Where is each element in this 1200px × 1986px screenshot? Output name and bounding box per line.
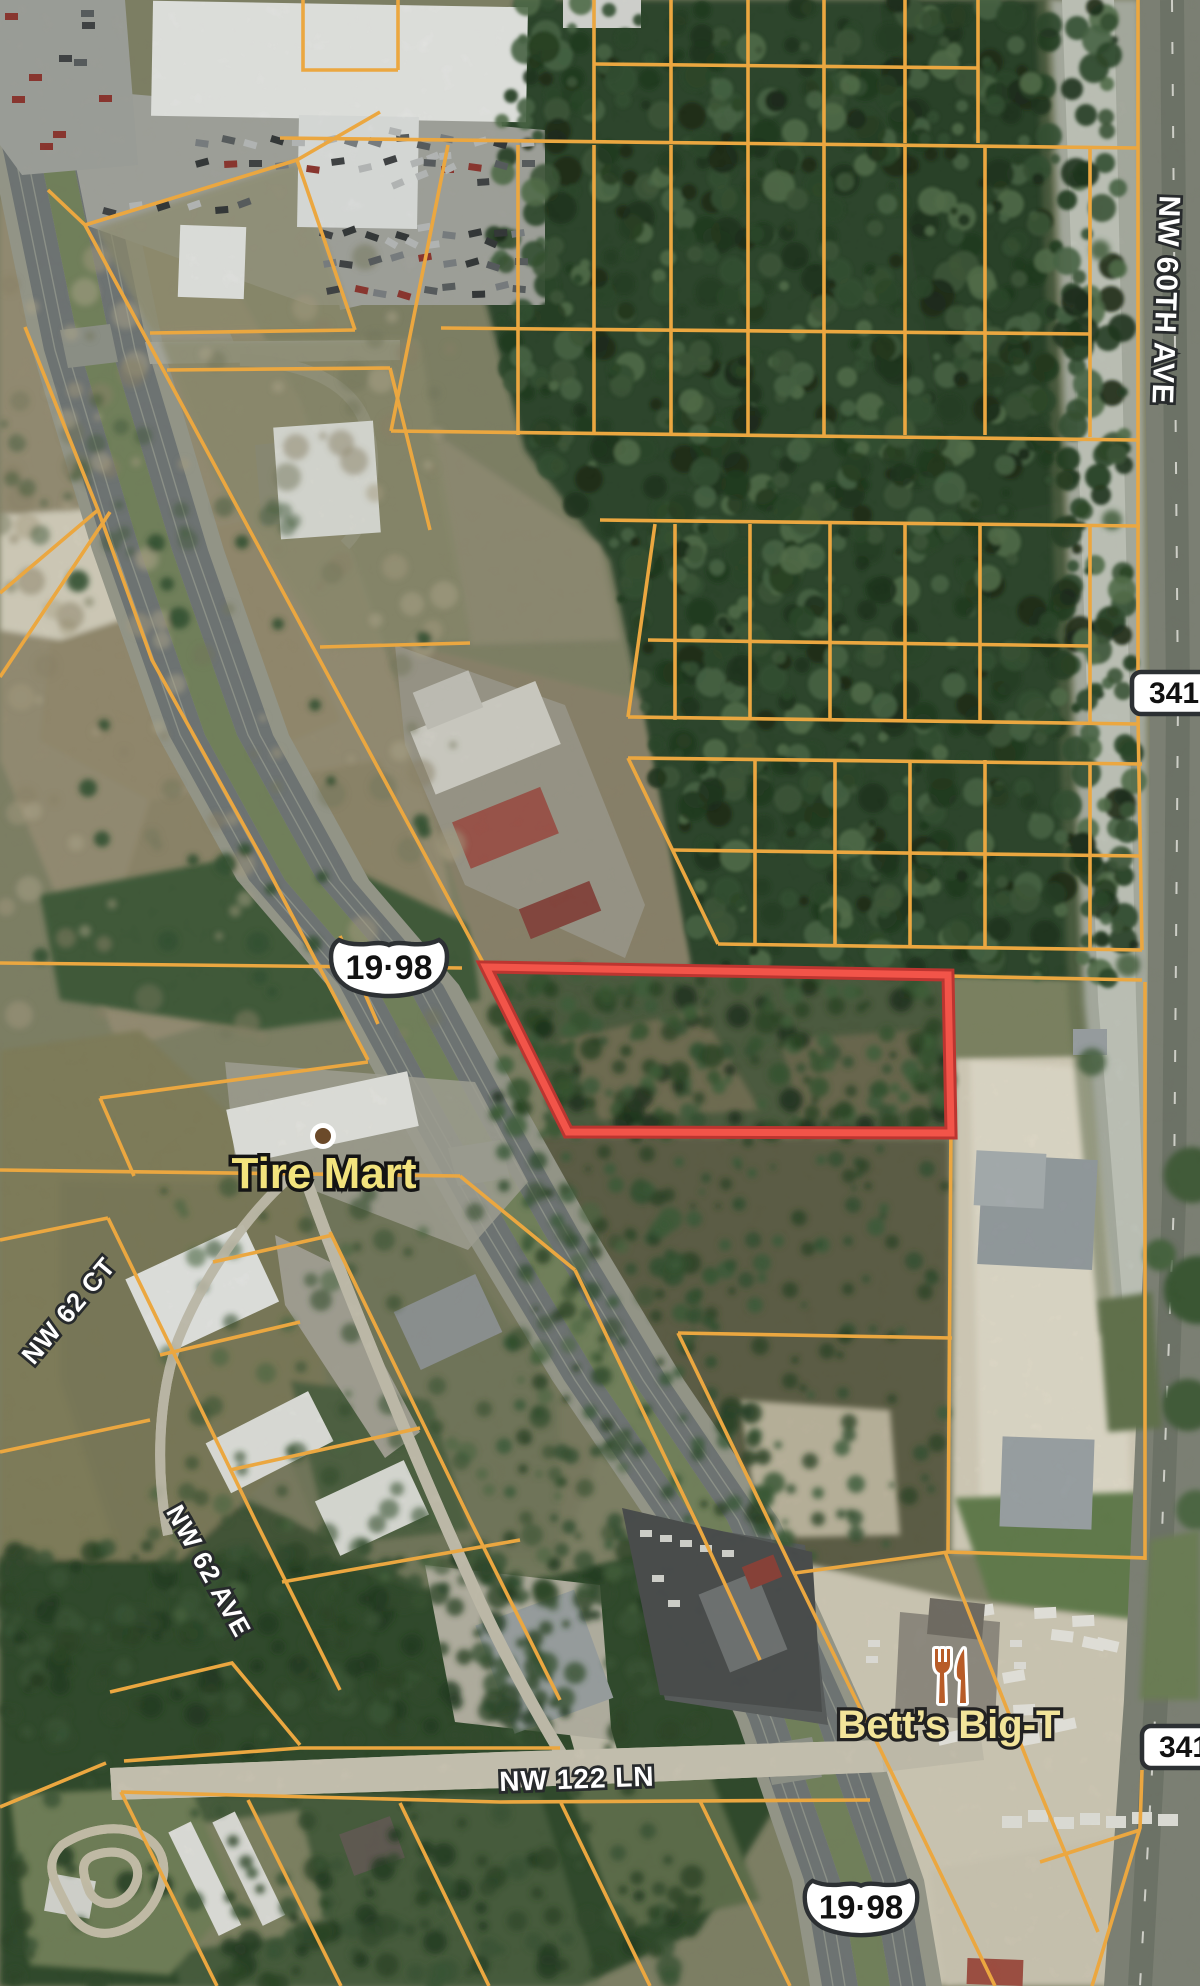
svg-text:19·98: 19·98 [346, 949, 433, 987]
svg-text:Tire Mart: Tire Mart [231, 1149, 416, 1198]
svg-text:341: 341 [1149, 677, 1199, 710]
svg-text:NW 122 LN: NW 122 LN [499, 1761, 655, 1797]
svg-text:19·98: 19·98 [819, 1889, 903, 1926]
svg-text:341: 341 [1159, 1731, 1200, 1764]
svg-text:Bett’s Big-T: Bett’s Big-T [838, 1703, 1061, 1747]
